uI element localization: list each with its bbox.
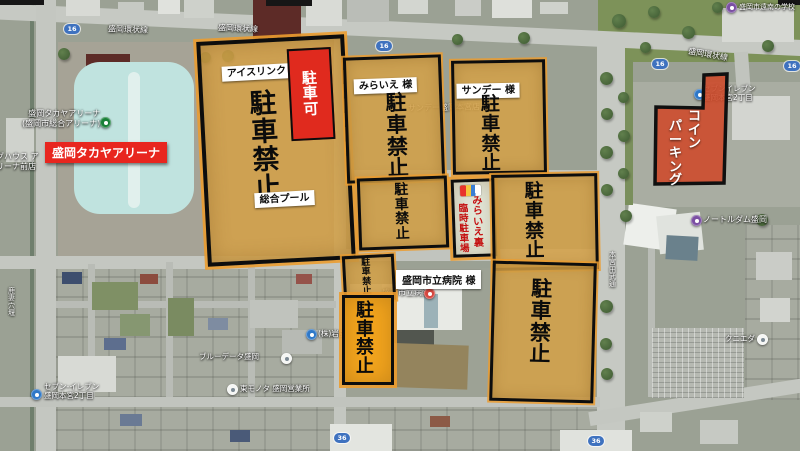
- tree-icon: [618, 168, 629, 179]
- doghouse-label: グハウス ア リーナ前店: [0, 152, 39, 171]
- route-16-shield: 16: [64, 24, 80, 34]
- tree-icon: [612, 14, 626, 28]
- tree-icon: [618, 92, 629, 103]
- tree-icon: [518, 32, 530, 44]
- ring-road-label: 盛岡環状線: [108, 24, 148, 35]
- parking-ok-box: 駐車可: [287, 47, 336, 141]
- house-roof: [120, 414, 142, 426]
- hospital-glass: [424, 294, 438, 328]
- kabu-icon: [306, 329, 317, 340]
- bluedata-label: ブルーデータ盛岡: [199, 352, 259, 361]
- ice-rink-label: アイスリンク: [222, 63, 292, 82]
- no-parking-text-large: 駐車禁止: [249, 90, 285, 204]
- building-southeast: [640, 412, 672, 432]
- no-parking-text: 駐車禁止: [394, 183, 412, 242]
- hospital-poi-icon: [424, 288, 435, 299]
- building-east: [760, 298, 790, 322]
- house-roof: [296, 274, 312, 284]
- coin-parking-line1: コイン: [688, 110, 703, 151]
- arena-poi-label: 盛岡タカヤアリーナ (盛岡市総合アリーナ): [22, 109, 100, 128]
- tree-icon: [648, 6, 660, 18]
- tree-icon: [601, 108, 613, 120]
- parking-ok-text: 駐車可: [301, 70, 320, 118]
- house-roof: [140, 274, 158, 284]
- zone-arena-no-parking: アイスリンク 駐車可 駐車禁止 総合プール: [196, 34, 356, 266]
- no-parking-text: 駐車禁止: [361, 259, 373, 297]
- canal: [30, 0, 34, 451]
- building: [158, 0, 180, 14]
- tree-icon: [600, 146, 613, 159]
- route-36-shield: 36: [588, 436, 604, 446]
- rooftop-dark: [0, 0, 44, 5]
- zone-miraie-temp-parking: みらいえ裏 臨時駐車場: [451, 178, 498, 257]
- bluedata-icon: [281, 353, 292, 364]
- tree-icon: [58, 48, 70, 60]
- hospital-tag: 盛岡市立病院 様: [396, 270, 481, 289]
- building-center: [250, 300, 298, 328]
- zone-bottom-right: 駐車禁止: [489, 261, 597, 404]
- no-parking-text: 駐車禁止: [385, 92, 412, 180]
- house-roof: [104, 338, 126, 350]
- building: [455, 0, 481, 16]
- arena-banner: 盛岡タカヤアリーナ: [45, 142, 167, 163]
- arena-poi-icon: [100, 117, 111, 128]
- house-roof: [62, 272, 82, 284]
- zone-mid-left: 駐車禁止: [357, 175, 449, 250]
- building-northeast: [732, 96, 790, 140]
- zone-sunday: サンデー 様 駐車禁止: [451, 59, 547, 175]
- building-maroon: [253, 0, 301, 40]
- street-sw: [248, 262, 255, 397]
- building: [540, 2, 568, 14]
- building: [398, 0, 428, 14]
- seven-eleven-sw-icon: [31, 389, 42, 400]
- street-name-vertical: 本宮田武通: [609, 252, 617, 288]
- school-ne-icon: [726, 2, 737, 13]
- notredame-building: [665, 235, 698, 261]
- house-roof: [230, 430, 250, 442]
- pool-label: 総合プール: [254, 190, 315, 208]
- tree-icon: [601, 368, 613, 380]
- route-36-shield: 36: [334, 433, 350, 443]
- tree-icon: [620, 210, 632, 222]
- ring-road-label: 盛岡環状線: [218, 23, 258, 34]
- tree-icon: [600, 72, 613, 85]
- green-patch: [92, 282, 138, 310]
- temp-parking-line1: みらいえ裏: [472, 197, 485, 249]
- kunieda-icon: [757, 334, 768, 345]
- building: [347, 0, 389, 22]
- house-roof: [208, 318, 228, 330]
- seven-eleven-sw-label: セブン-イレブン 盛岡本宮2丁目: [44, 382, 99, 400]
- building: [184, 0, 214, 18]
- school-ne-label: 盛岡市遠南の学校: [739, 3, 795, 11]
- building-east: [756, 252, 792, 280]
- tree-icon: [600, 338, 612, 350]
- building: [118, 2, 144, 14]
- road-east: [597, 42, 625, 451]
- school-ne-building: [722, 8, 794, 42]
- tree-icon: [618, 130, 630, 142]
- coin-parking-line2: パーキング: [669, 120, 684, 188]
- canal-label: 鹿妻穴堰: [8, 288, 16, 317]
- kunieda-label: クニエダ: [725, 334, 755, 343]
- route-16-shield: 16: [784, 61, 800, 71]
- arena-poi-line1: 盛岡タカヤアリーナ: [22, 109, 100, 119]
- green-patch: [168, 298, 194, 336]
- no-parking-text: 駐車禁止: [524, 182, 547, 261]
- sales-office-icon: [227, 384, 238, 395]
- notredame-label: ノートルダム盛岡: [703, 215, 767, 225]
- building: [66, 0, 100, 16]
- notredame-icon: [691, 215, 702, 226]
- house-roof: [430, 416, 450, 427]
- green-patch: [120, 314, 150, 336]
- no-parking-text: 駐車禁止: [529, 279, 555, 367]
- route-16-shield: 16: [376, 41, 392, 51]
- no-parking-text: 駐車禁止: [481, 95, 504, 174]
- miraie-logo-icon: [460, 185, 481, 197]
- rooftop-dark: [266, 0, 312, 6]
- arena-roof-ridge: [128, 72, 140, 208]
- tree-icon: [452, 34, 463, 45]
- arena-poi-line2: (盛岡市総合アリーナ): [22, 119, 100, 129]
- tree-icon: [712, 2, 723, 13]
- tree-icon: [600, 300, 613, 313]
- tree-icon: [682, 26, 695, 39]
- zone-miraie: みらいえ 様 駐車禁止: [343, 54, 445, 183]
- sales-office-label: 東モノタ 盛岡営業所: [240, 384, 310, 393]
- zone-mid-right: 駐車禁止: [491, 173, 599, 271]
- tree-icon: [762, 40, 774, 52]
- satellite-map: 盛岡環状線 盛岡環状線 盛岡環状線 16 16 16 16 36 36 盛岡タカ…: [0, 0, 800, 451]
- no-parking-text: 駐車禁止: [356, 302, 376, 377]
- tree-icon: [640, 42, 651, 53]
- tree-icon: [601, 184, 613, 196]
- route-16-shield: 16: [652, 59, 668, 69]
- building-southeast: [700, 420, 738, 444]
- zone-yellow-no-parking: 駐車禁止: [342, 295, 394, 385]
- building: [492, 0, 532, 18]
- temp-parking-line2: 臨時駐車場: [459, 204, 471, 254]
